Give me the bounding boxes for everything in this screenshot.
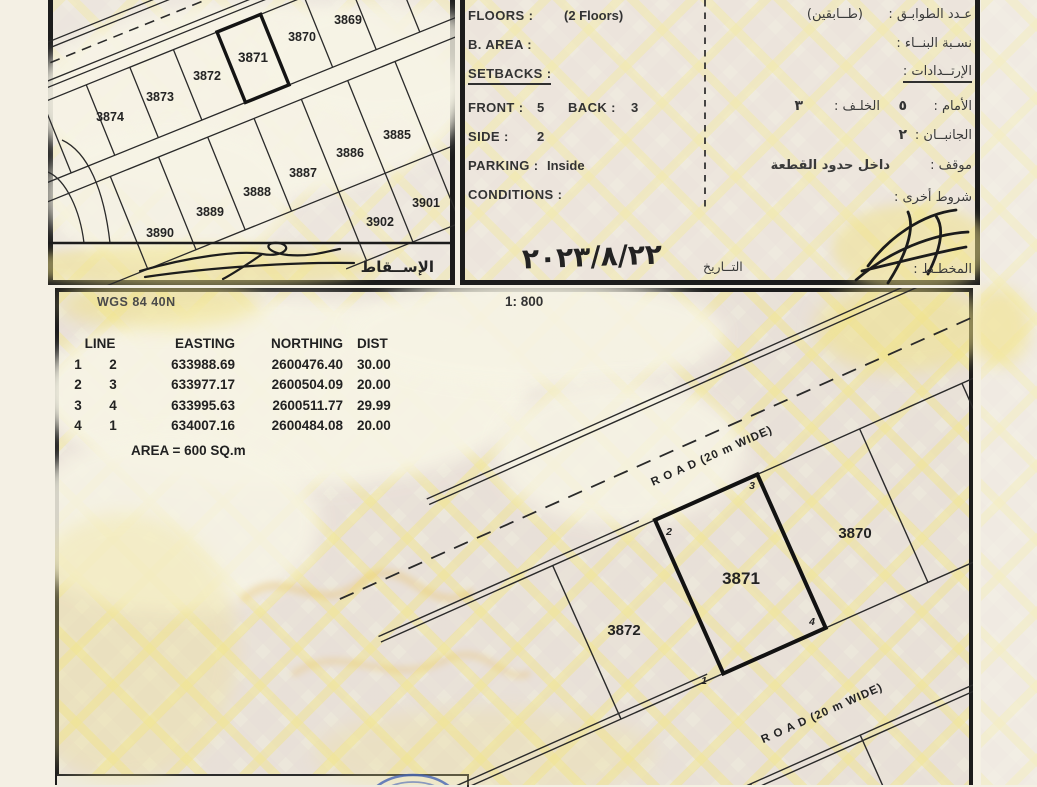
back-label: BACK : xyxy=(568,100,616,115)
conditions-label-ar: شروط أخرى : xyxy=(894,190,972,205)
plot-label: 3901 xyxy=(412,196,440,210)
coordinate-table: LINE EASTING NORTHING DIST 1 2 633988.69… xyxy=(65,334,401,437)
table-cell: 2600511.77 xyxy=(235,396,343,417)
table-header-dist: DIST xyxy=(343,334,401,355)
index-map-caption: الإســقاط xyxy=(361,258,434,276)
floors-value-ar: (طــابقين) xyxy=(807,7,863,22)
table-cell: 2600484.08 xyxy=(235,416,343,437)
page-right-strip xyxy=(981,0,1037,785)
plan-label-ar: المخطـط : xyxy=(913,262,972,277)
front-value-ar: ٥ xyxy=(898,98,907,114)
back-value-ar: ٣ xyxy=(794,98,803,114)
plot-label: 3902 xyxy=(366,215,394,229)
table-cell: 633995.63 xyxy=(135,396,235,417)
corner-2-label: 2 xyxy=(665,526,672,538)
front-label: FRONT : xyxy=(468,100,524,115)
scanned-krooki-document: { "page": {"bg": "#f4f0e4", "ink": "#222… xyxy=(0,0,1037,785)
plot-label: 3889 xyxy=(196,205,224,219)
road-label-lower: R O A D (20 m WIDE) xyxy=(760,681,885,746)
side-label: SIDE : xyxy=(468,129,509,144)
table-cell: 30.00 xyxy=(343,355,401,376)
corner-4-label: 4 xyxy=(808,616,815,628)
table-cell: 4 xyxy=(65,416,91,437)
parking-value-ar: داخل حدود القطعة xyxy=(771,158,890,173)
floors-label: FLOORS : xyxy=(468,8,533,23)
setbacks-form-panel: FLOORS : (2 Floors) B. AREA : SETBACKS :… xyxy=(460,0,980,285)
setbacks-label-ar: الإرتــدادات : xyxy=(903,64,972,83)
plot-label: 3885 xyxy=(383,128,411,142)
setbacks-label: SETBACKS : xyxy=(468,66,551,85)
datum-label: WGS 84 40N xyxy=(97,295,176,309)
table-cell: 20.00 xyxy=(343,416,401,437)
table-cell: 2600476.40 xyxy=(235,355,343,376)
sides-label-ar: الجانبــان : xyxy=(915,128,972,143)
table-header-northing: NORTHING xyxy=(235,334,343,355)
index-map-panel: 3874 3873 3872 3871 3870 3869 3885 3886 … xyxy=(48,0,455,285)
plot-label: 3888 xyxy=(243,185,271,199)
barea-label: B. AREA : xyxy=(468,37,532,52)
corner-3-label: 3 xyxy=(749,480,755,492)
floors-value: (2 Floors) xyxy=(564,8,623,23)
plot-right-label: 3870 xyxy=(838,525,871,542)
plot-label: 3870 xyxy=(288,30,316,44)
plot-left-label: 3872 xyxy=(607,622,640,639)
watermark-script xyxy=(245,573,527,676)
table-cell: 2600504.09 xyxy=(235,375,343,396)
plot-label: 3874 xyxy=(96,110,124,124)
plot-label: 3869 xyxy=(334,13,362,27)
table-cell: 1 xyxy=(65,355,91,376)
front-value: 5 xyxy=(537,100,544,115)
plot-main-label: 3871 xyxy=(722,569,760,588)
table-cell: 3 xyxy=(91,375,135,396)
table-cell: 20.00 xyxy=(343,375,401,396)
side-value: 2 xyxy=(537,129,544,144)
parking-label: PARKING : xyxy=(468,158,539,173)
table-cell: 29.99 xyxy=(343,396,401,417)
date-label-ar: التــاريخ xyxy=(703,259,743,274)
area-value: AREA = 600 SQ.m xyxy=(131,443,246,458)
index-map-drawing: 3874 3873 3872 3871 3870 3869 3885 3886 … xyxy=(48,0,455,285)
table-cell: 1 xyxy=(91,416,135,437)
table-header-line: LINE xyxy=(65,334,135,355)
table-cell: 2 xyxy=(91,355,135,376)
page-right-yellow-blob xyxy=(968,288,1030,366)
scale-label: 1: 800 xyxy=(505,294,543,309)
table-cell: 2 xyxy=(65,375,91,396)
conditions-label: CONDITIONS : xyxy=(468,187,562,202)
plot-label: 3871 xyxy=(238,50,269,65)
plot-label: 3872 xyxy=(193,69,221,83)
table-cell: 3 xyxy=(65,396,91,417)
parking-label-ar: موقف : xyxy=(930,158,972,173)
ratio-label-ar: نسـبة البنــاء : xyxy=(896,36,972,51)
back-label-ar: الخلـف : xyxy=(834,99,880,114)
front-label-ar: الأمام : xyxy=(933,99,972,114)
table-cell: 633977.17 xyxy=(135,375,235,396)
plot-label: 3886 xyxy=(336,146,364,160)
table-header-easting: EASTING xyxy=(135,334,235,355)
parking-value: Inside xyxy=(547,158,585,173)
corner-1-label: 1 xyxy=(701,675,707,687)
signature-highlight xyxy=(48,244,378,285)
floors-label-ar: عـدد الطوابـق : xyxy=(888,7,972,22)
site-plan-panel: R O A D (20 m WIDE) R O A D (20 m WIDE) … xyxy=(55,288,973,785)
table-cell: 633988.69 xyxy=(135,355,235,376)
back-value: 3 xyxy=(631,100,638,115)
table-cell: 4 xyxy=(91,396,135,417)
table-cell: 634007.16 xyxy=(135,416,235,437)
sides-value-ar: ٢ xyxy=(898,127,907,143)
plot-label: 3873 xyxy=(146,90,174,104)
plot-label: 3890 xyxy=(146,226,174,240)
plot-label: 3887 xyxy=(289,166,317,180)
handwritten-date: ٢٠٢٣/٨/٢٢ xyxy=(521,238,662,276)
